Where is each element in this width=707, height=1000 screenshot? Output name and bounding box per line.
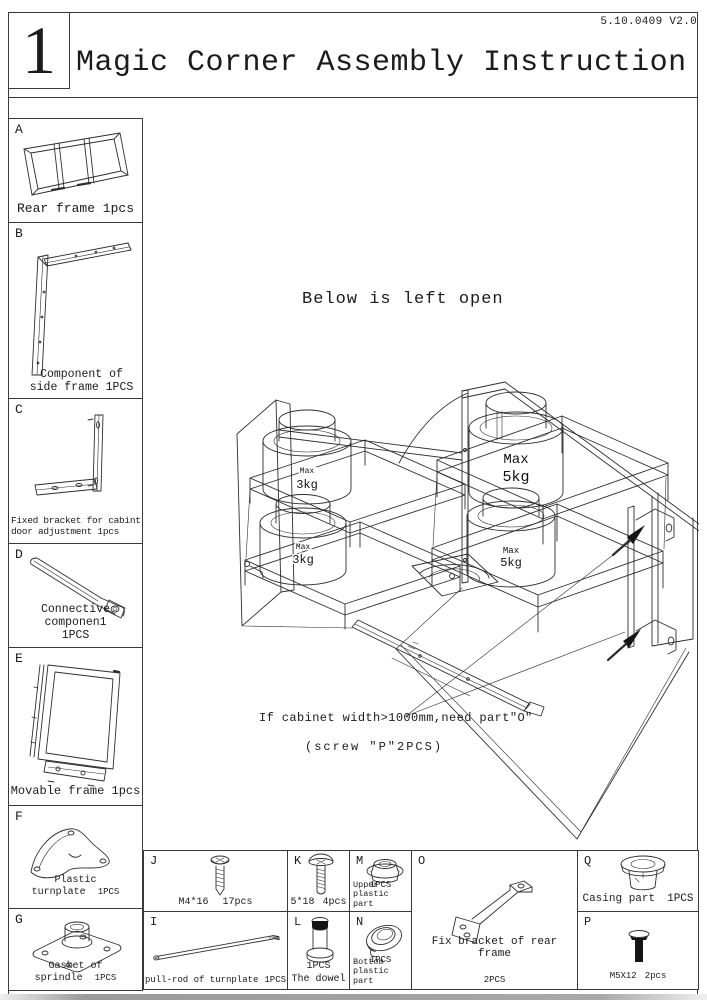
screw-m5x12-illustration bbox=[621, 926, 657, 970]
part-letter: Q bbox=[584, 854, 591, 868]
figure-number: 1 bbox=[22, 12, 56, 88]
side-frame-illustration bbox=[16, 237, 138, 379]
part-cell-c: C Fixed bracket for cabint door adjustme… bbox=[8, 398, 143, 544]
part-letter: J bbox=[150, 854, 157, 868]
part-qty: 1PCS bbox=[288, 961, 349, 973]
max-load-label: Max bbox=[503, 546, 519, 556]
part-letter: C bbox=[15, 402, 23, 417]
part-caption: Rear frame 1pcs bbox=[9, 202, 142, 217]
part-caption: Fixed bracket for cabint door adjustment… bbox=[9, 516, 142, 538]
part-cell-m: M 1PCS Upper plastic part bbox=[349, 850, 412, 912]
max-load-value: 5kg bbox=[502, 469, 529, 486]
part-caption: Bottom plastic part bbox=[350, 958, 411, 987]
max-load-value: 3kg bbox=[296, 478, 318, 492]
header-rule bbox=[8, 97, 698, 98]
screw-m4x16-illustration bbox=[202, 853, 238, 899]
part-qty: 2pcs bbox=[645, 971, 667, 981]
part-caption: Fix bracket of rear frame bbox=[412, 936, 577, 961]
pull-rod-illustration bbox=[149, 918, 284, 976]
part-caption: Component of side frame 1PCS bbox=[23, 368, 140, 394]
part-qty: 17pcs bbox=[223, 897, 253, 908]
figure-number-box: 1 bbox=[8, 12, 70, 89]
part-letter: K bbox=[294, 854, 301, 868]
max-load-label: Max bbox=[503, 452, 528, 468]
part-caption: pull-rod of turnplate1PCS bbox=[144, 975, 287, 985]
max-load-value: 5kg bbox=[500, 556, 522, 570]
part-letter: P bbox=[584, 915, 591, 929]
part-cell-f: F Plastic turnplate 1PCS bbox=[8, 805, 143, 909]
part-caption: Movable frame 1pcs bbox=[9, 785, 142, 799]
part-caption: Plastic turnplate 1PCS bbox=[9, 875, 142, 898]
part-caption: 5*184pcs bbox=[288, 897, 349, 909]
part-name: pull-rod of turnplate bbox=[145, 975, 258, 985]
max-load-value: 3kg bbox=[292, 553, 314, 567]
annotation-line1: If cabinet width>1000mm,need part"O" bbox=[259, 711, 533, 725]
assembly-diagram: Max 3kg Max 3kg Max 5kg Max 5kg bbox=[143, 100, 699, 850]
part-spec: M4*16 bbox=[178, 897, 208, 908]
part-cell-g: G Gasket of sprindle 1PCS bbox=[8, 908, 143, 991]
max-load-label: Max bbox=[296, 543, 311, 552]
part-cell-b: B Component of side frame 1PCS bbox=[8, 222, 143, 399]
version-number: 5.10.0409 V2.0 bbox=[600, 16, 697, 28]
part-cell-l: L 1PCS The dowel bbox=[287, 911, 350, 990]
screw-5x18-illustration bbox=[304, 852, 338, 900]
part-cell-e: E Movable frame 1pcs bbox=[8, 647, 143, 806]
max-load-label: Max bbox=[300, 467, 315, 476]
part-spec: M5X12 bbox=[610, 971, 637, 981]
part-qty: 4pcs bbox=[323, 897, 347, 908]
part-cell-n: N 1PCS Bottom plastic part bbox=[349, 911, 412, 990]
annotation-line2: (screw "P"2PCS) bbox=[305, 740, 443, 754]
part-letter: O bbox=[418, 854, 425, 868]
part-name: Casing part bbox=[582, 893, 655, 905]
part-caption: M5X122pcs bbox=[578, 971, 698, 981]
part-caption: Gasket of sprindle 1PCS bbox=[9, 961, 142, 984]
part-caption-text: Gasket of sprindle bbox=[35, 961, 103, 984]
part-cell-q: Q Casing part1PCS bbox=[577, 850, 699, 912]
instruction-sheet: 1 Magic Corner Assembly Instruction 5.10… bbox=[0, 0, 707, 1000]
part-qty: 1PCS bbox=[667, 893, 693, 905]
part-spec: 5*18 bbox=[290, 897, 314, 908]
part-caption: Connective componen1 bbox=[9, 603, 142, 629]
part-qty: 1PCS bbox=[95, 973, 117, 983]
part-cell-d: D Connective componen1 1PCS bbox=[8, 543, 143, 648]
part-caption: Upper plastic part bbox=[350, 881, 411, 910]
part-qty: 2PCS bbox=[412, 975, 577, 985]
part-qty: 1PCS bbox=[9, 629, 142, 642]
part-caption-text: Plastic turnplate bbox=[32, 875, 97, 898]
movable-frame-illustration bbox=[18, 657, 135, 789]
part-caption: M4*1617pcs bbox=[144, 897, 287, 909]
part-caption: Casing part1PCS bbox=[578, 893, 698, 906]
part-cell-i: I pull-rod of turnplate1PCS bbox=[143, 911, 288, 990]
casing-part-illustration bbox=[608, 853, 678, 895]
part-qty: 1PCS bbox=[98, 887, 120, 897]
part-qty: 1PCS bbox=[264, 975, 286, 985]
part-cell-a: A Rear frame 1pcs bbox=[8, 118, 143, 223]
page-title: Magic Corner Assembly Instruction bbox=[76, 46, 687, 80]
bottom-plastic-part-illustration bbox=[360, 918, 408, 958]
part-cell-o: O Fix bracket of rear frame 2PCS bbox=[411, 850, 578, 990]
rear-frame-illustration bbox=[16, 127, 138, 201]
part-cell-k: K 5*184pcs bbox=[287, 850, 350, 912]
dowel-illustration bbox=[303, 915, 337, 965]
fixed-bracket-illustration bbox=[23, 411, 135, 515]
scan-artifact-strip bbox=[0, 994, 707, 1000]
part-caption: The dowel bbox=[288, 974, 349, 986]
part-cell-p: P M5X122pcs bbox=[577, 911, 699, 990]
part-cell-j: J M4*1617pcs bbox=[143, 850, 288, 912]
part-letter: L bbox=[294, 915, 301, 929]
